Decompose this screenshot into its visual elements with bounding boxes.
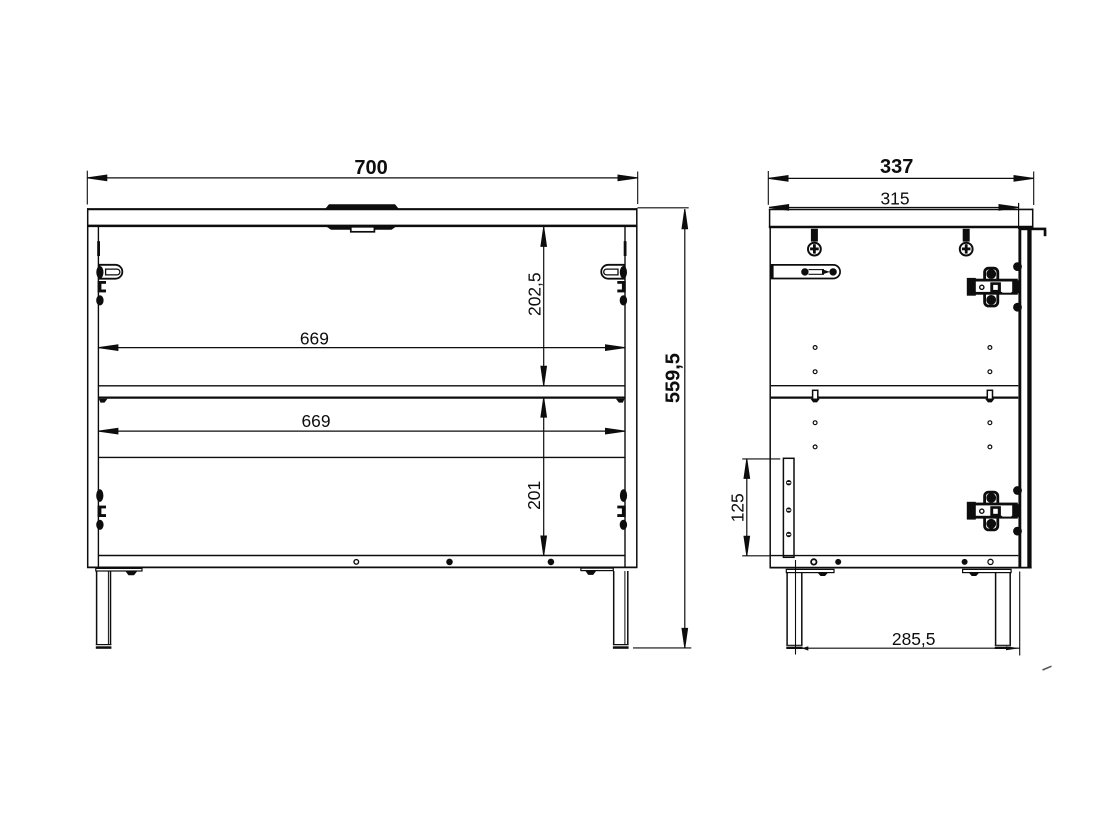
svg-text:315: 315 (880, 189, 909, 209)
svg-text:700: 700 (354, 157, 387, 179)
svg-text:337: 337 (880, 156, 913, 178)
svg-text:285,5: 285,5 (892, 629, 936, 649)
svg-text:559,5: 559,5 (662, 353, 684, 403)
svg-text:202,5: 202,5 (525, 272, 545, 316)
svg-text:125: 125 (727, 493, 747, 522)
svg-text:669: 669 (301, 411, 330, 431)
svg-text:201: 201 (524, 481, 544, 510)
svg-text:669: 669 (300, 328, 329, 348)
